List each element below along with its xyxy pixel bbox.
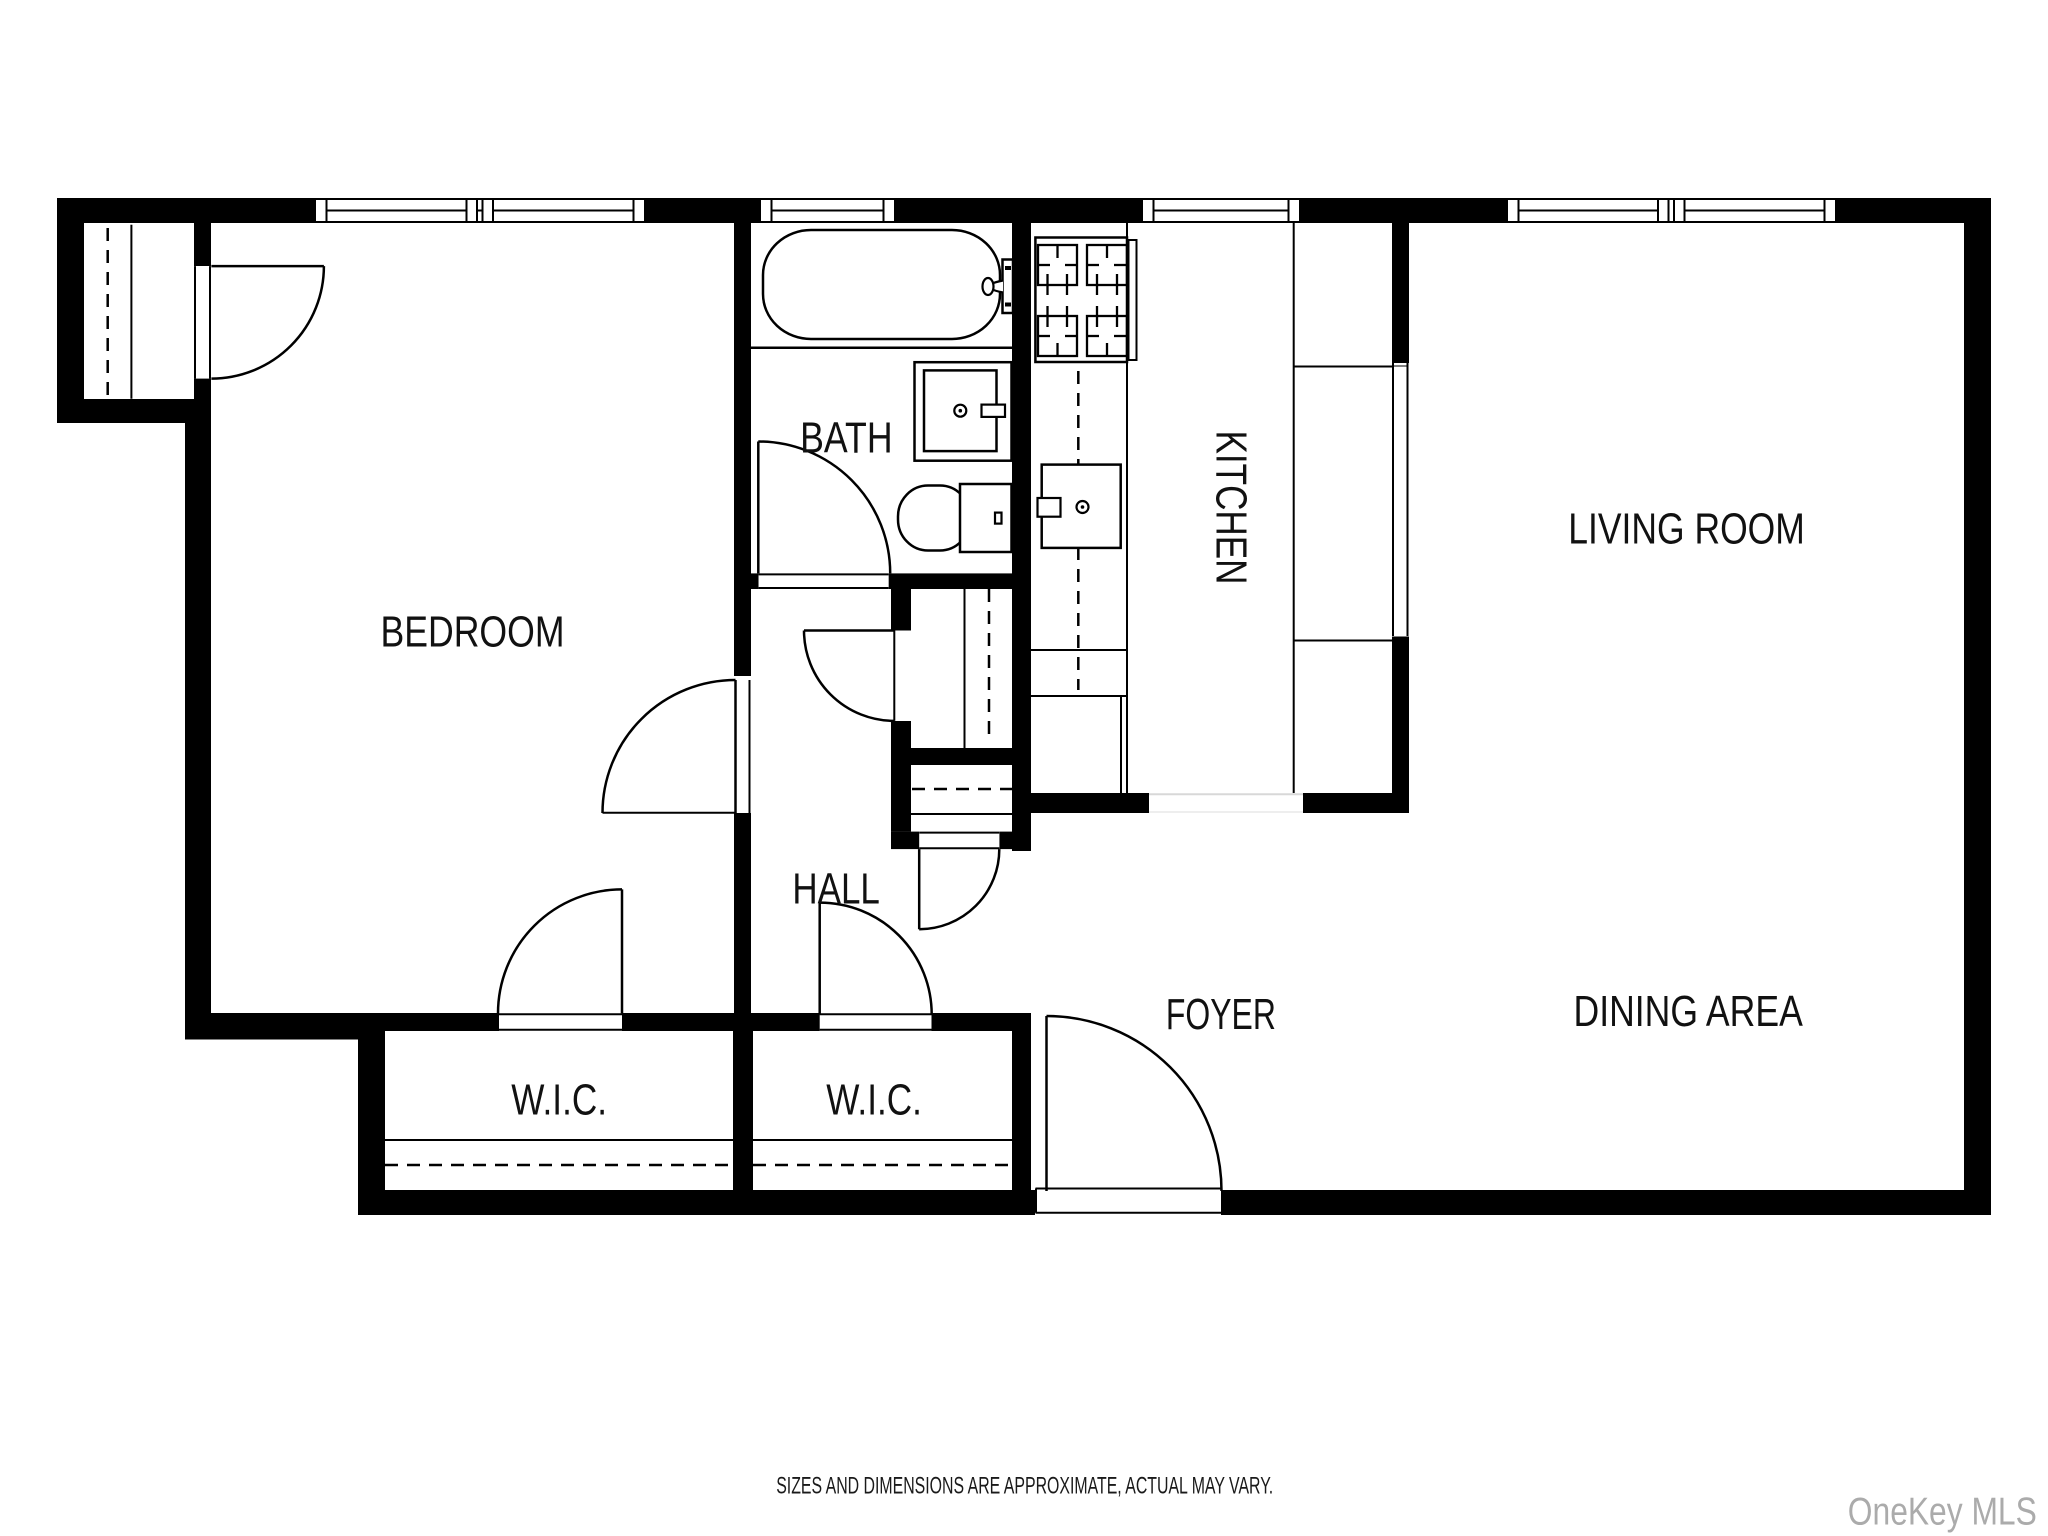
svg-text:FOYER: FOYER [1166,990,1276,1039]
svg-text:SIZES AND DIMENSIONS ARE APPRO: SIZES AND DIMENSIONS ARE APPROXIMATE, AC… [776,1473,1273,1500]
svg-text:BATH: BATH [800,413,893,462]
svg-text:BEDROOM: BEDROOM [381,607,565,656]
svg-text:W.I.C.: W.I.C. [511,1075,607,1124]
svg-text:DINING AREA: DINING AREA [1574,987,1804,1036]
svg-text:KITCHEN: KITCHEN [1207,431,1256,585]
svg-text:LIVING ROOM: LIVING ROOM [1568,505,1805,554]
svg-text:OneKey MLS: OneKey MLS [1848,1491,2037,1534]
svg-text:W.I.C.: W.I.C. [826,1075,922,1124]
svg-text:HALL: HALL [792,864,880,913]
